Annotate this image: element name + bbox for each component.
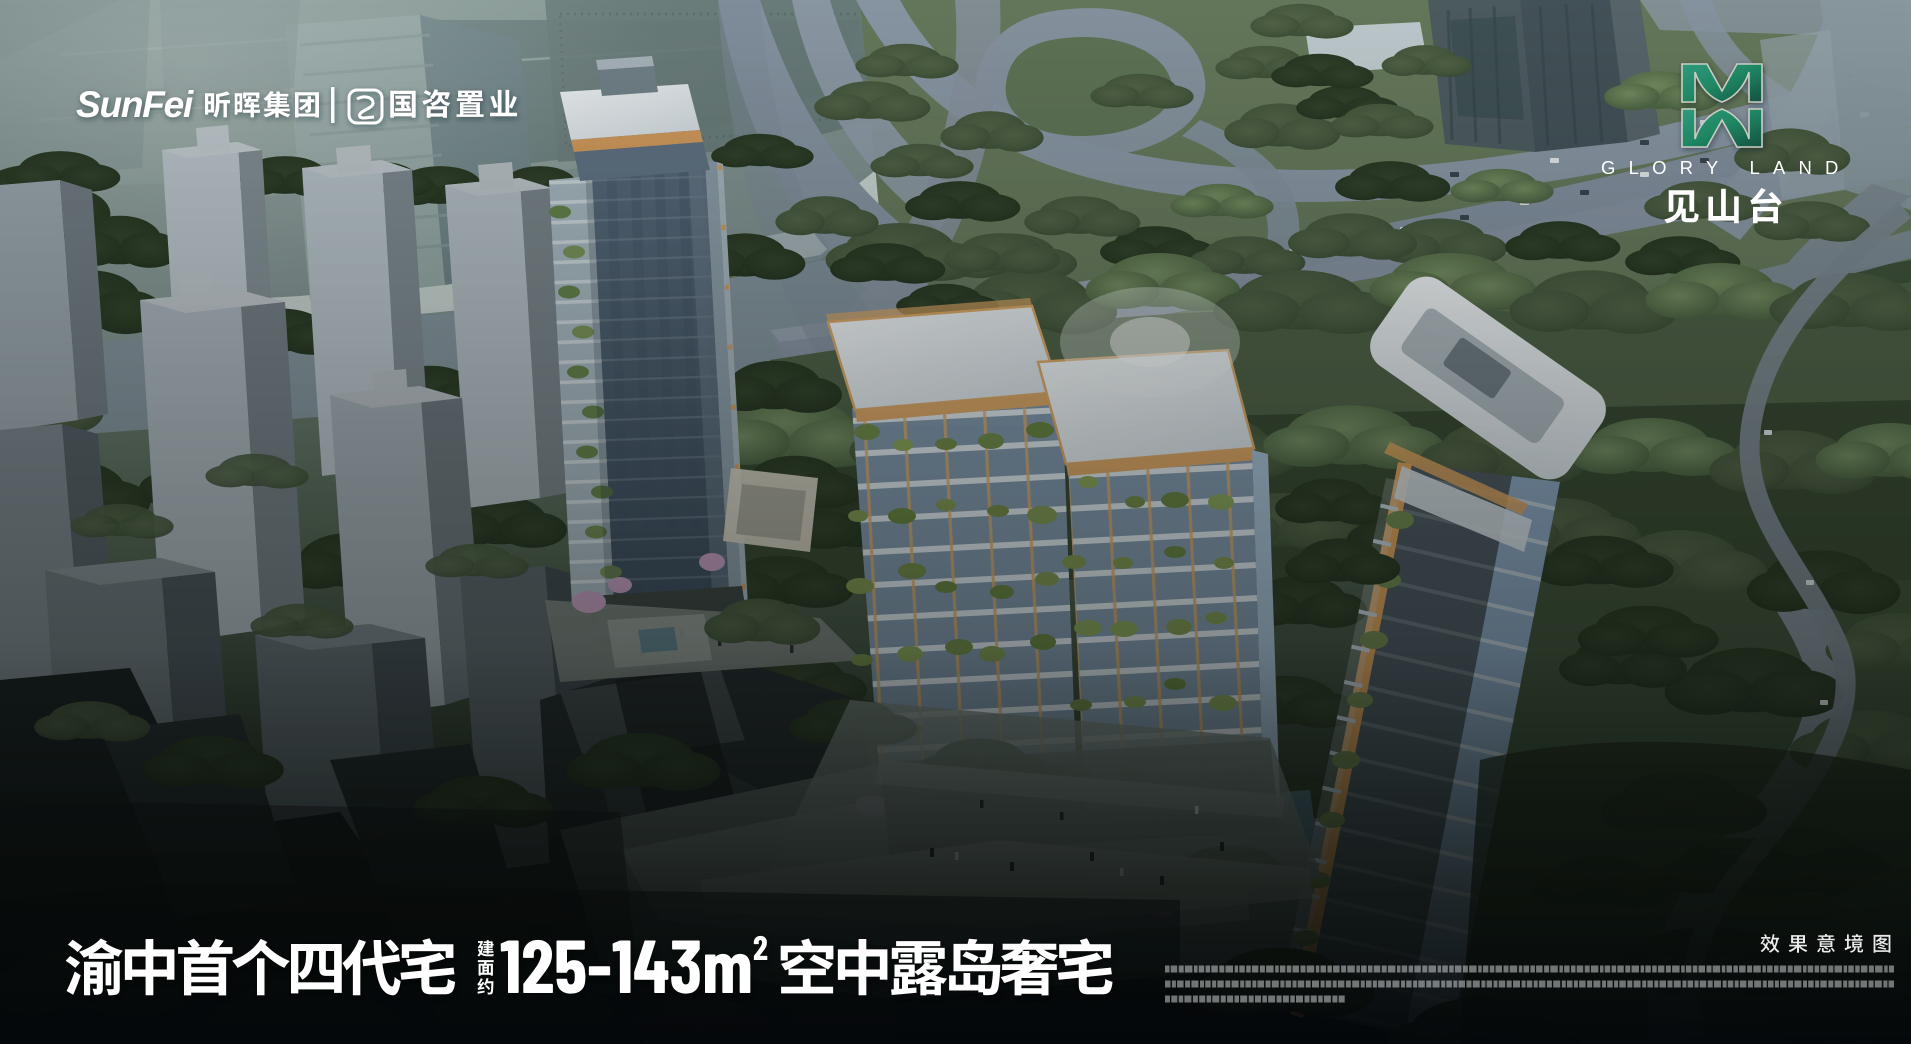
- svg-text:SunFei: SunFei: [76, 84, 194, 125]
- svg-text:GLORY LAND: GLORY LAND: [1601, 157, 1852, 178]
